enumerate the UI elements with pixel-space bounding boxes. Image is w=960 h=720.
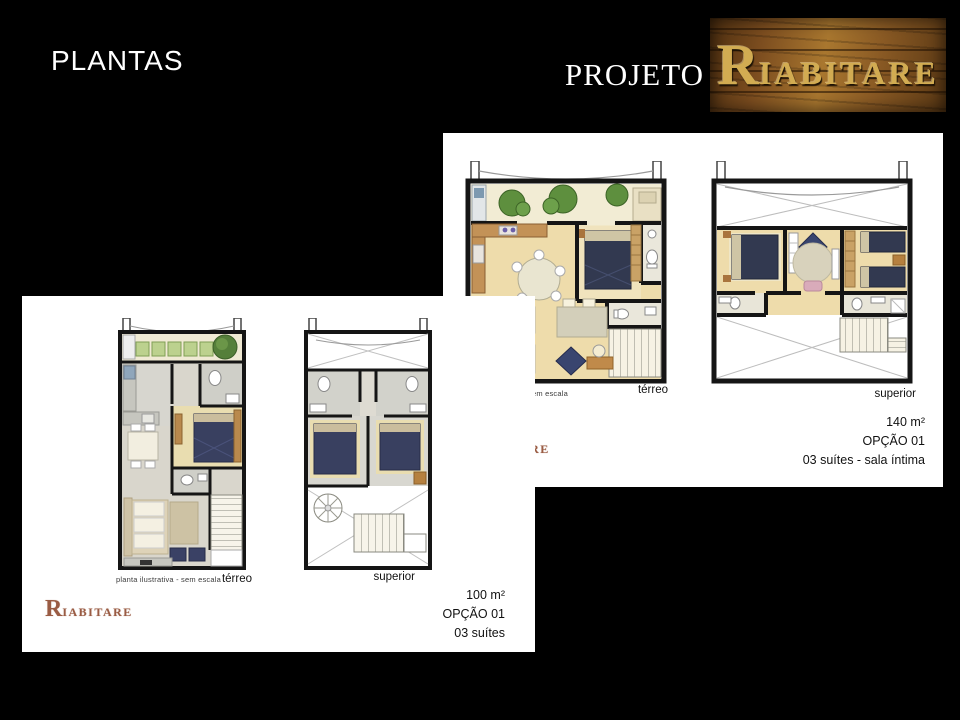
bed [579, 229, 637, 289]
terrace-vent [639, 192, 656, 203]
pouf [804, 281, 822, 291]
stairs-landing [888, 338, 906, 352]
planter-icon [136, 342, 213, 356]
page-title: PLANTAS [51, 45, 184, 77]
balcony-curve [479, 171, 653, 179]
tree-icon [213, 335, 237, 359]
sink [645, 307, 656, 315]
stairs-landing [211, 550, 242, 566]
wardrobe [845, 231, 855, 287]
bed [723, 231, 781, 282]
floor-label-superior: superior [853, 388, 916, 400]
stairs-landing [404, 534, 426, 552]
riabitare-logo: RIABITARE [710, 18, 946, 112]
slide-background: PLANTAS PROJETO RIABITARE [0, 0, 960, 720]
hall-floor [766, 293, 842, 315]
stairs [609, 329, 661, 377]
terrace-closet [123, 335, 135, 359]
card-brand-logo: RIABITARE [45, 596, 133, 623]
floorplan-100-terreo [112, 318, 252, 574]
floor-label-terreo: térreo [192, 573, 252, 585]
toilet-icon [647, 250, 658, 268]
plan-info: 140 m² OPÇÃO 01 03 suítes - sala íntima [803, 413, 925, 470]
laundry-sink [474, 188, 484, 198]
plan-card-100: planta ilustrativa - sem escala térreo s… [22, 296, 535, 652]
stairs [354, 514, 404, 552]
spiral-stairs [314, 494, 342, 522]
floor-label-terreo: térreo [603, 384, 668, 396]
sofa [124, 498, 168, 556]
toilet-icon [614, 309, 629, 319]
plan-option: OPÇÃO 01 [442, 605, 505, 624]
bathroom-floor [717, 293, 766, 315]
plan-description: 03 suítes - sala íntima [803, 451, 925, 470]
plan-option: OPÇÃO 01 [803, 432, 925, 451]
floorplan-140-superior [705, 161, 919, 389]
stairs [211, 495, 242, 550]
hall-floor [360, 370, 376, 416]
stairs [840, 318, 888, 352]
riabitare-logo-text: RIABITARE [717, 36, 939, 94]
plan-area: 140 m² [803, 413, 925, 432]
wardrobe [631, 225, 641, 281]
floor-label-superior: superior [355, 571, 415, 583]
plan-description: 03 suítes [442, 624, 505, 643]
tv-shelf [832, 249, 839, 279]
rug [170, 502, 198, 544]
plan-info: 100 m² OPÇÃO 01 03 suítes [442, 586, 505, 643]
plan-area: 100 m² [442, 586, 505, 605]
project-label: PROJETO [565, 57, 704, 93]
bed [190, 410, 238, 464]
round-rug [793, 243, 833, 283]
bed [310, 420, 360, 478]
sink [648, 230, 656, 238]
media-counter [124, 558, 172, 566]
floorplan-100-superior [298, 318, 438, 574]
